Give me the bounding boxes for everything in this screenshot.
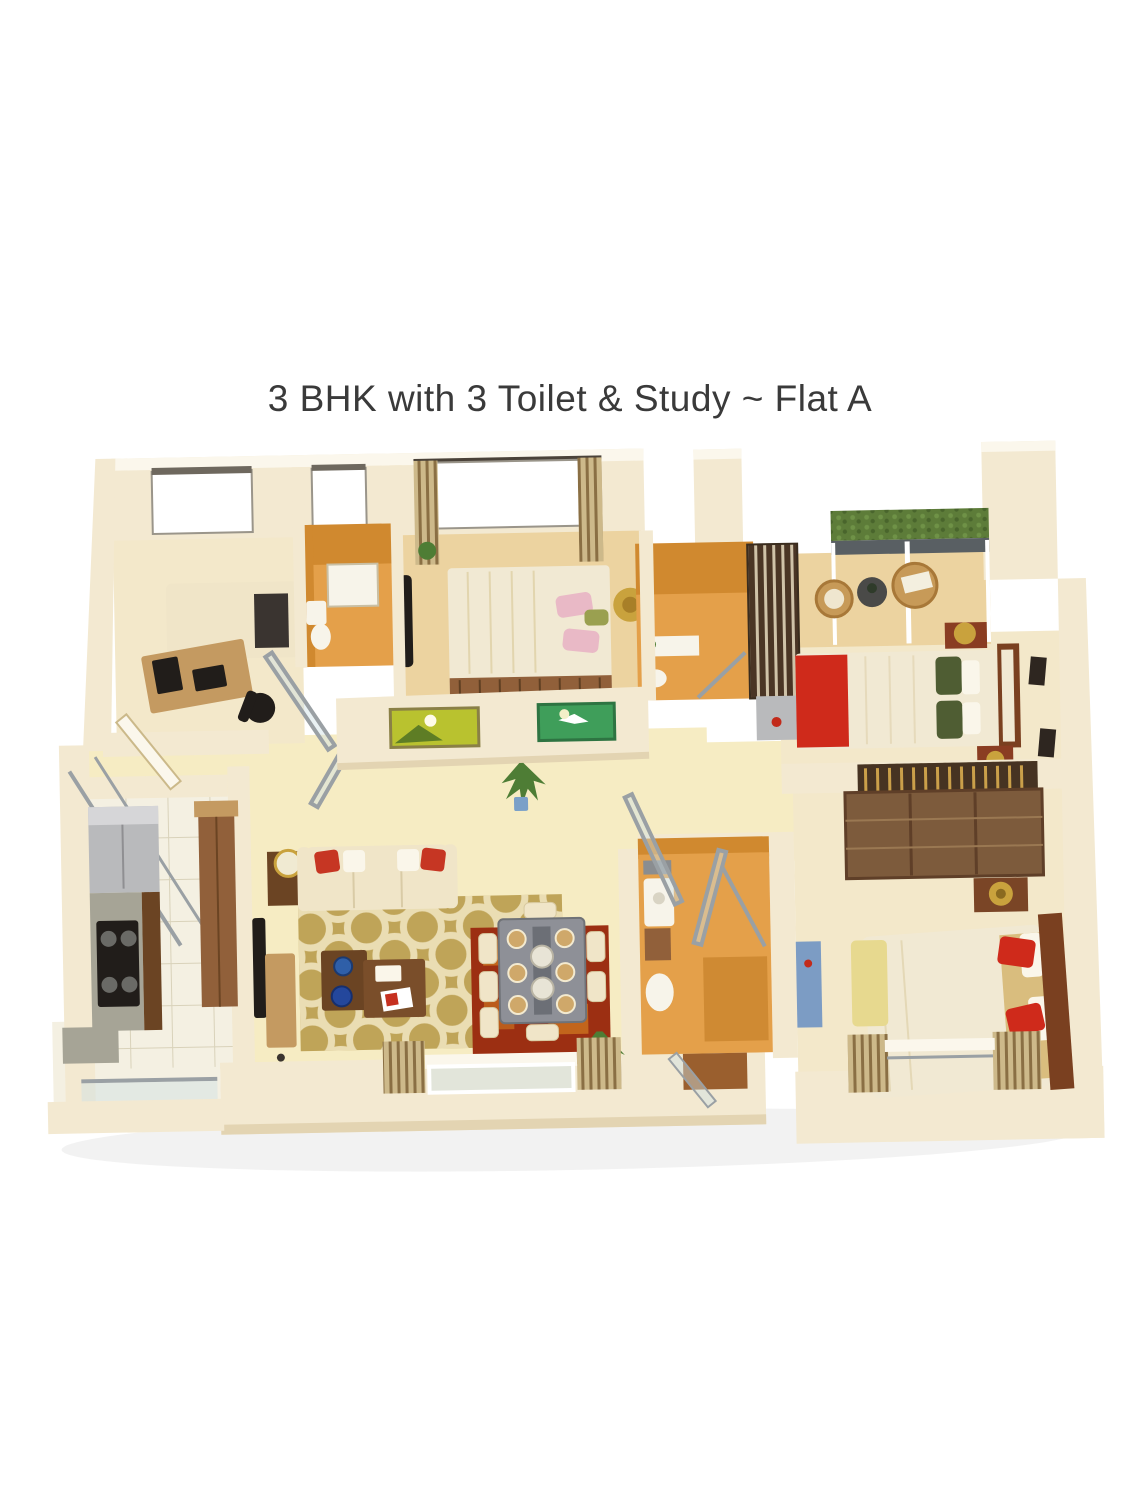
red-runner xyxy=(795,655,849,748)
foot-bench xyxy=(851,940,889,1027)
green-pillow xyxy=(584,609,608,625)
wall-frame xyxy=(1038,728,1056,757)
pink-pillow xyxy=(562,628,600,654)
sofa xyxy=(297,844,458,911)
red-pillow xyxy=(420,847,446,872)
slatted-wardrobe-unit xyxy=(747,544,801,741)
white-pillow xyxy=(962,702,981,734)
painting-bird-green xyxy=(538,703,615,740)
curtain-right xyxy=(577,457,603,561)
floor-plan-page: 3 BHK with 3 Toilet & Study ~ Flat A xyxy=(0,0,1140,1500)
wash-basin xyxy=(306,601,326,625)
wall-frame xyxy=(1028,656,1046,685)
floor-plan-render xyxy=(0,0,1140,1500)
master-bed xyxy=(860,913,1074,1103)
tv-screen xyxy=(252,918,267,1018)
toilet-1 xyxy=(301,523,398,667)
white-pillow xyxy=(343,850,365,872)
basin-cabinet xyxy=(644,928,671,960)
red-pillow xyxy=(997,936,1037,969)
counter-with-stove xyxy=(90,892,163,1031)
wardrobe xyxy=(844,761,1043,879)
white-pillow xyxy=(961,660,980,694)
green-pillow xyxy=(936,700,963,738)
white-pillow xyxy=(397,849,419,871)
toilet1-window xyxy=(312,464,367,527)
nightstand-lamp xyxy=(974,877,1029,912)
red-pillow xyxy=(314,849,341,874)
hedge xyxy=(830,508,989,541)
apartment-3d-plan xyxy=(35,440,1105,1180)
dining-table xyxy=(498,918,586,1024)
painting-landscape-yellow xyxy=(390,708,479,748)
shower-tray xyxy=(327,564,378,607)
refrigerator xyxy=(88,806,160,893)
green-pillow xyxy=(935,656,962,694)
tv-cabinet xyxy=(796,941,823,1027)
study-window xyxy=(152,466,253,534)
